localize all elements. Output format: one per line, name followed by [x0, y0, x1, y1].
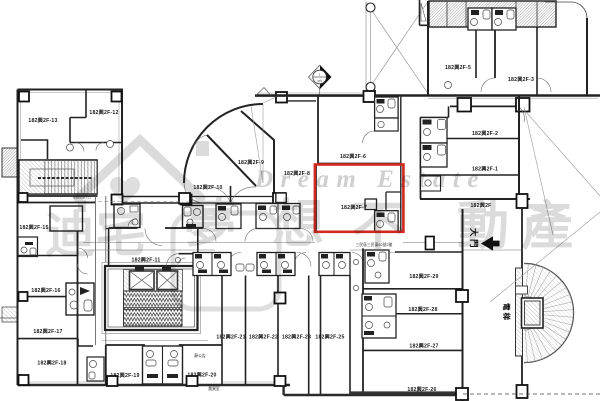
svg-text:不: 不	[352, 198, 404, 256]
svg-text:想: 想	[272, 196, 324, 254]
svg-text:農異室: 農異室	[208, 386, 220, 391]
svg-text:宅: 宅	[96, 206, 146, 262]
svg-text:電梯: 電梯	[502, 303, 512, 322]
svg-text:182興2F-12: 182興2F-12	[89, 108, 118, 116]
svg-text:182興2F-6: 182興2F-6	[340, 152, 366, 160]
svg-text:182興2F-17: 182興2F-17	[33, 327, 62, 335]
svg-text:Dream Estate: Dream Estate	[254, 166, 486, 193]
svg-text:靜公告: 靜公告	[194, 353, 206, 358]
svg-text:182興2F-23: 182興2F-23	[282, 333, 311, 341]
svg-text:182興2F-22: 182興2F-22	[249, 333, 278, 341]
svg-text:182興2F-13: 182興2F-13	[28, 116, 57, 124]
svg-text:182興2F-3: 182興2F-3	[508, 75, 534, 83]
svg-text:182興2F-29: 182興2F-29	[409, 272, 438, 280]
svg-text:182興2F-9: 182興2F-9	[238, 158, 264, 166]
svg-text:182興2F-18: 182興2F-18	[37, 359, 66, 367]
svg-text:182興2F-25: 182興2F-25	[315, 333, 344, 341]
svg-text:182興2F-28: 182興2F-28	[408, 305, 437, 313]
svg-text:夢: 夢	[184, 196, 236, 254]
svg-text:182興2F-27: 182興2F-27	[409, 342, 438, 350]
svg-text:產: 產	[521, 198, 573, 256]
svg-text:182興2F-5: 182興2F-5	[445, 63, 471, 71]
svg-text:182興2F-2: 182興2F-2	[472, 129, 498, 137]
svg-text:182興2F-21: 182興2F-21	[216, 333, 245, 341]
svg-text:182興2F-16: 182興2F-16	[31, 286, 60, 294]
svg-text:動: 動	[457, 198, 509, 256]
svg-text:472: 472	[317, 79, 322, 83]
svg-text:迪: 迪	[45, 207, 95, 263]
